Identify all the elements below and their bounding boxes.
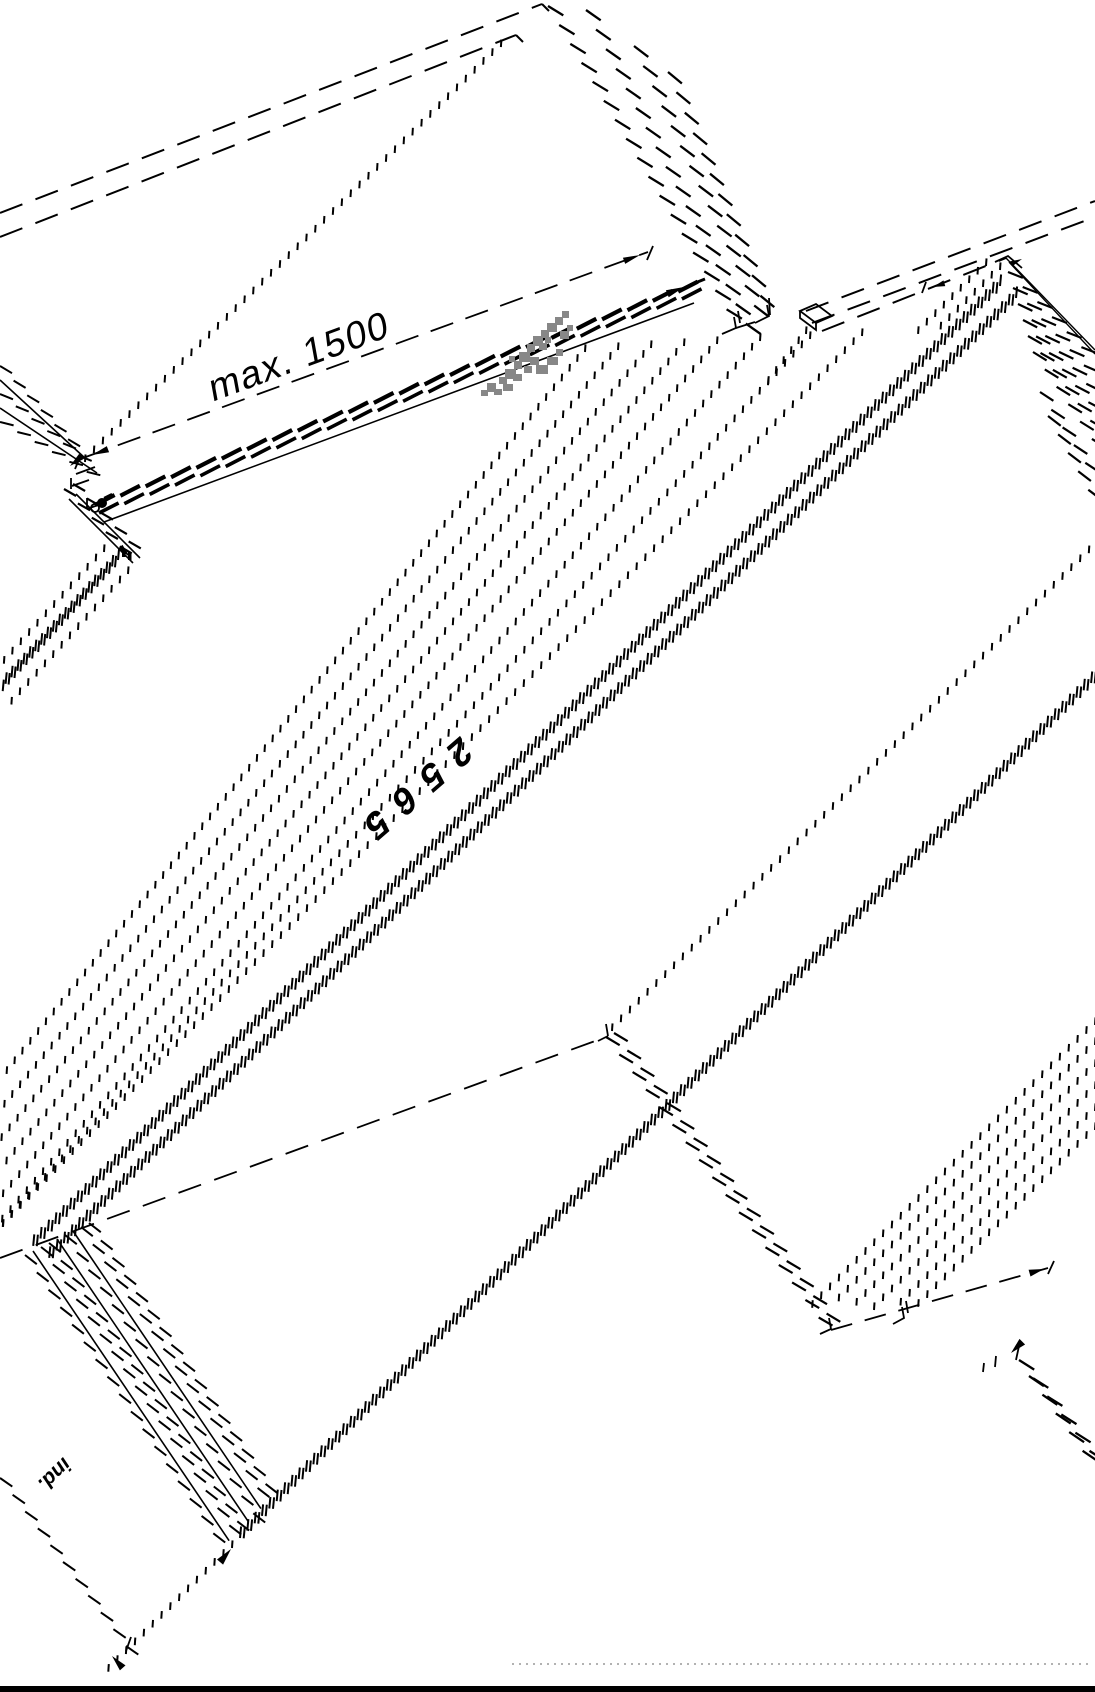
svg-text:ind.: ind. <box>34 1452 74 1497</box>
svg-text:max. 1500: max. 1500 <box>206 302 393 411</box>
svg-text:2565: 2565 <box>346 728 478 860</box>
